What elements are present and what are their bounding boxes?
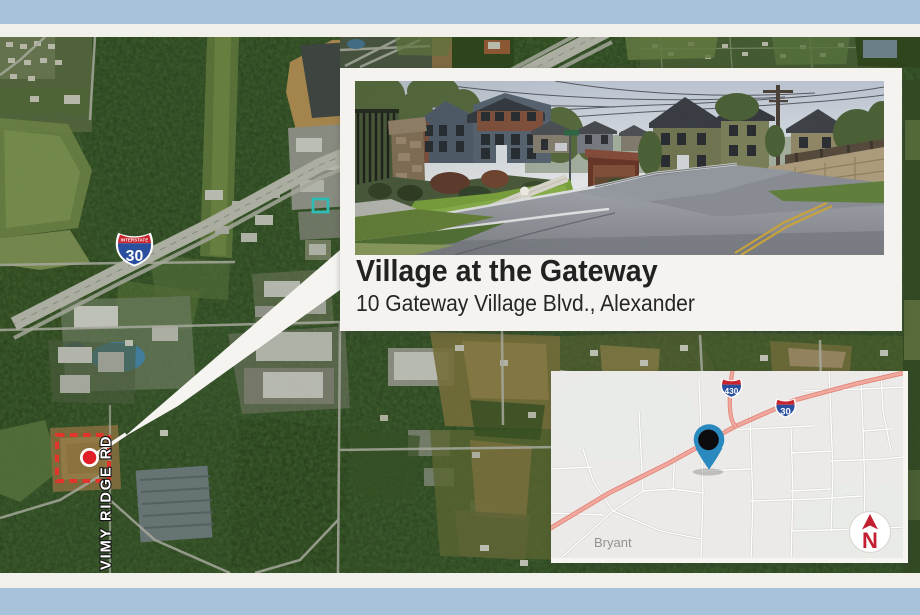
- svg-text:N: N: [862, 528, 878, 553]
- svg-text:30: 30: [780, 407, 791, 418]
- svg-text:430: 430: [725, 386, 739, 396]
- svg-text:Bryant: Bryant: [594, 535, 632, 550]
